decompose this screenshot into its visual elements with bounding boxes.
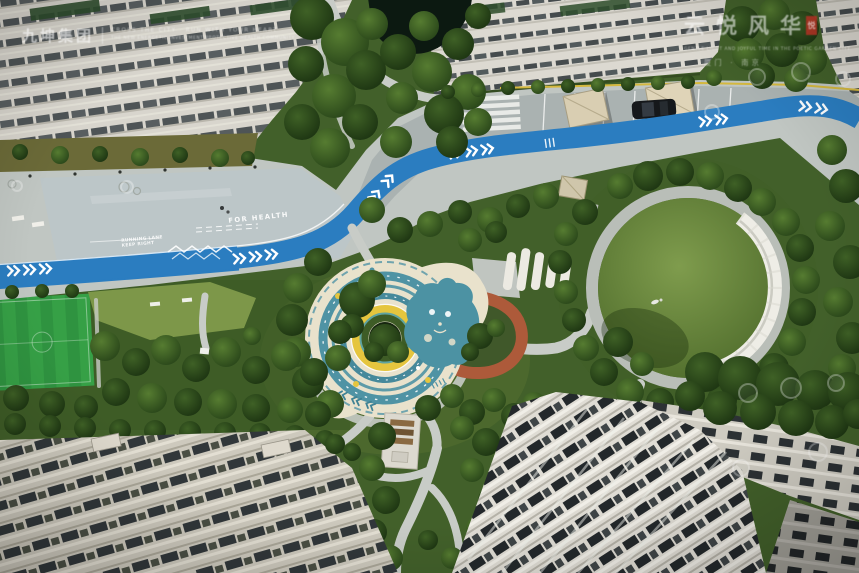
vignette [0, 0, 859, 573]
aerial-photo: 九坤集团 CROSS THE CITY · RUN WITH YOUR HEAR… [0, 0, 859, 573]
aerial-scene [0, 0, 859, 573]
